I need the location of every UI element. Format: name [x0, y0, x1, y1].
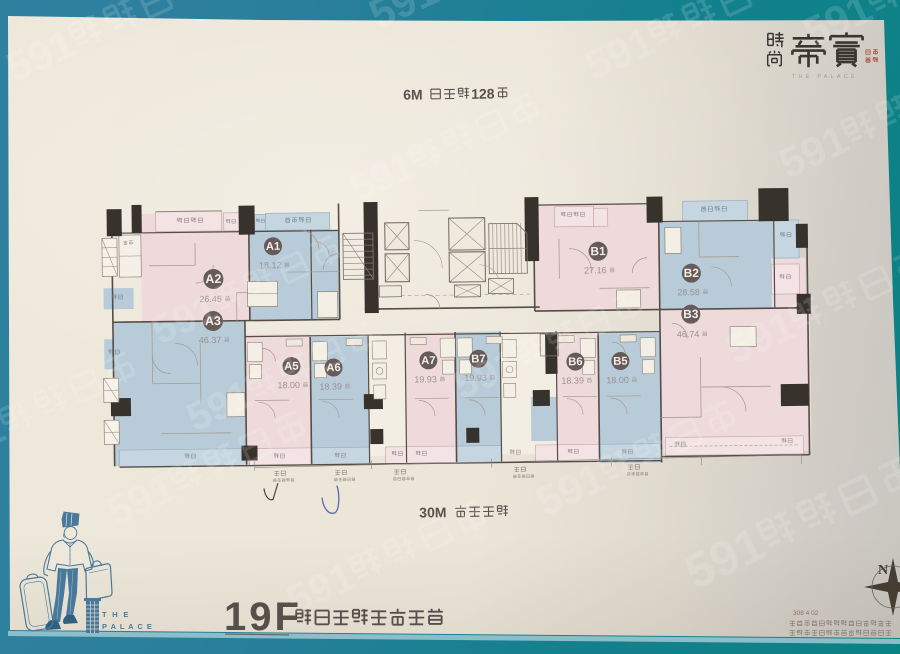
svg-text:591: 591 — [362, 0, 445, 38]
svg-text:591: 591 — [796, 0, 879, 56]
